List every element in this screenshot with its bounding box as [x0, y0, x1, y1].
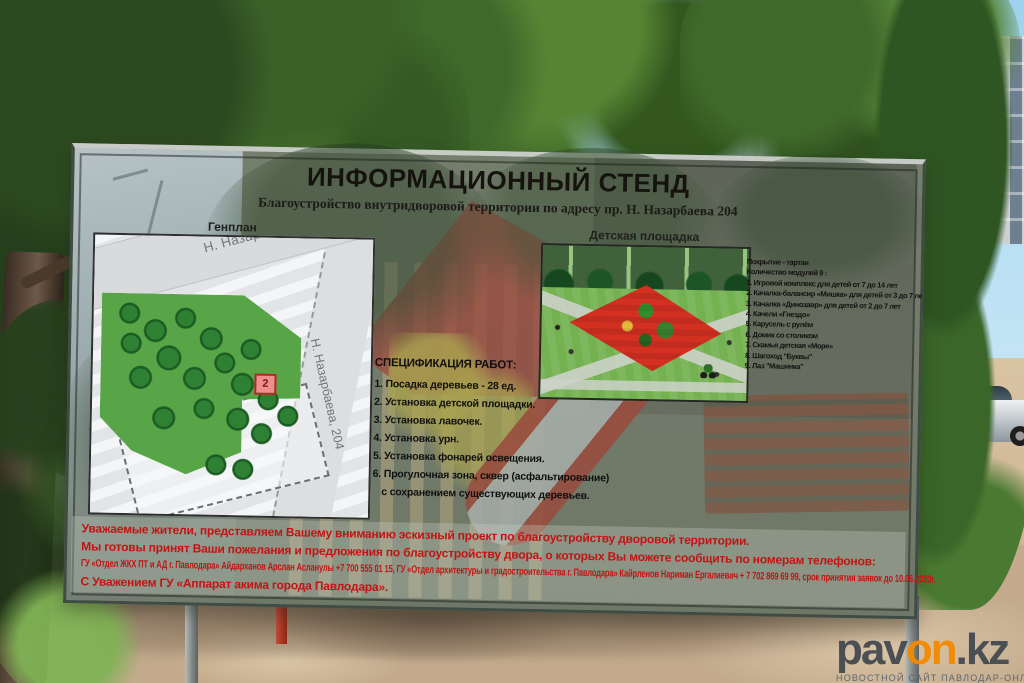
- watermark-part2: on: [906, 625, 956, 674]
- watermark-logo: pavon.kz: [836, 628, 1024, 672]
- notice-text: Уважаемые жители, представляем Вашему вн…: [70, 516, 905, 608]
- map-trees: [90, 234, 373, 517]
- spec-item: 5. Установка фонарей освещения.: [373, 450, 605, 466]
- genplan-map: Н. Назарбаева, 204 Н. Назарбаева, 204 2: [88, 232, 375, 519]
- spec-item: 6. Прогулочная зона, сквер (асфальтирова…: [373, 468, 605, 484]
- watermark-part3: .kz: [956, 625, 1009, 674]
- render-cyclist: [699, 364, 717, 378]
- watermark-part1: pav: [836, 625, 906, 674]
- stand-leg-left: [185, 594, 198, 683]
- watermark: pavon.kz НОВОСТНОЙ САЙТ ПАВЛОДАР-ОНЛАЙН: [836, 628, 1024, 683]
- modules-list: Покрытие - тартан Количество модулей 9 :…: [745, 257, 923, 375]
- playground-render: [538, 243, 751, 403]
- spec-item: 4. Установка урн.: [373, 432, 605, 448]
- photo-scene: ИНФОРМАЦИОННЫЙ СТЕНД Благоустройство вну…: [0, 0, 1024, 683]
- information-stand: ИНФОРМАЦИОННЫЙ СТЕНД Благоустройство вну…: [63, 143, 926, 619]
- watermark-tagline: НОВОСТНОЙ САЙТ ПАВЛОДАР-ОНЛАЙН: [836, 673, 1024, 683]
- spec-item: с сохранением существующих деревьев.: [372, 486, 604, 502]
- spec-item: 3. Установка лавочек.: [374, 414, 606, 430]
- map-marker: 2: [254, 374, 276, 395]
